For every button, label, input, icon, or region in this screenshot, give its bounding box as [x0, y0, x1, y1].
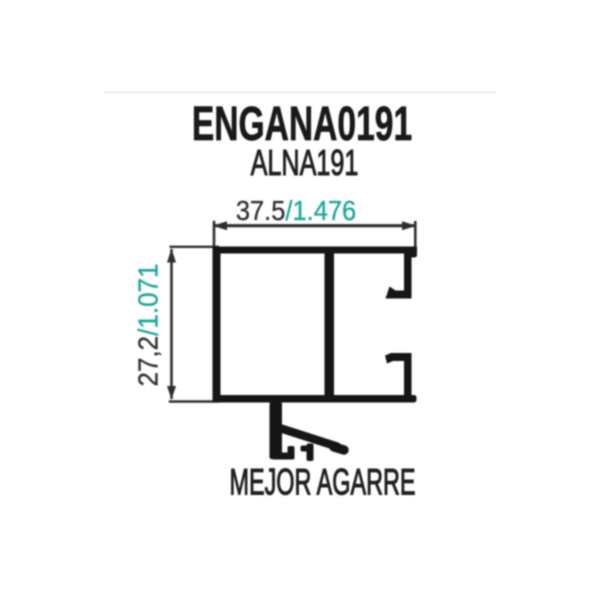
svg-text:MEJOR AGARRE: MEJOR AGARRE: [229, 461, 415, 503]
svg-text:ALNA191: ALNA191: [251, 142, 359, 183]
svg-text:37.5/1.476: 37.5/1.476: [236, 195, 356, 226]
svg-text:27,2/1.071: 27,2/1.071: [133, 263, 164, 386]
